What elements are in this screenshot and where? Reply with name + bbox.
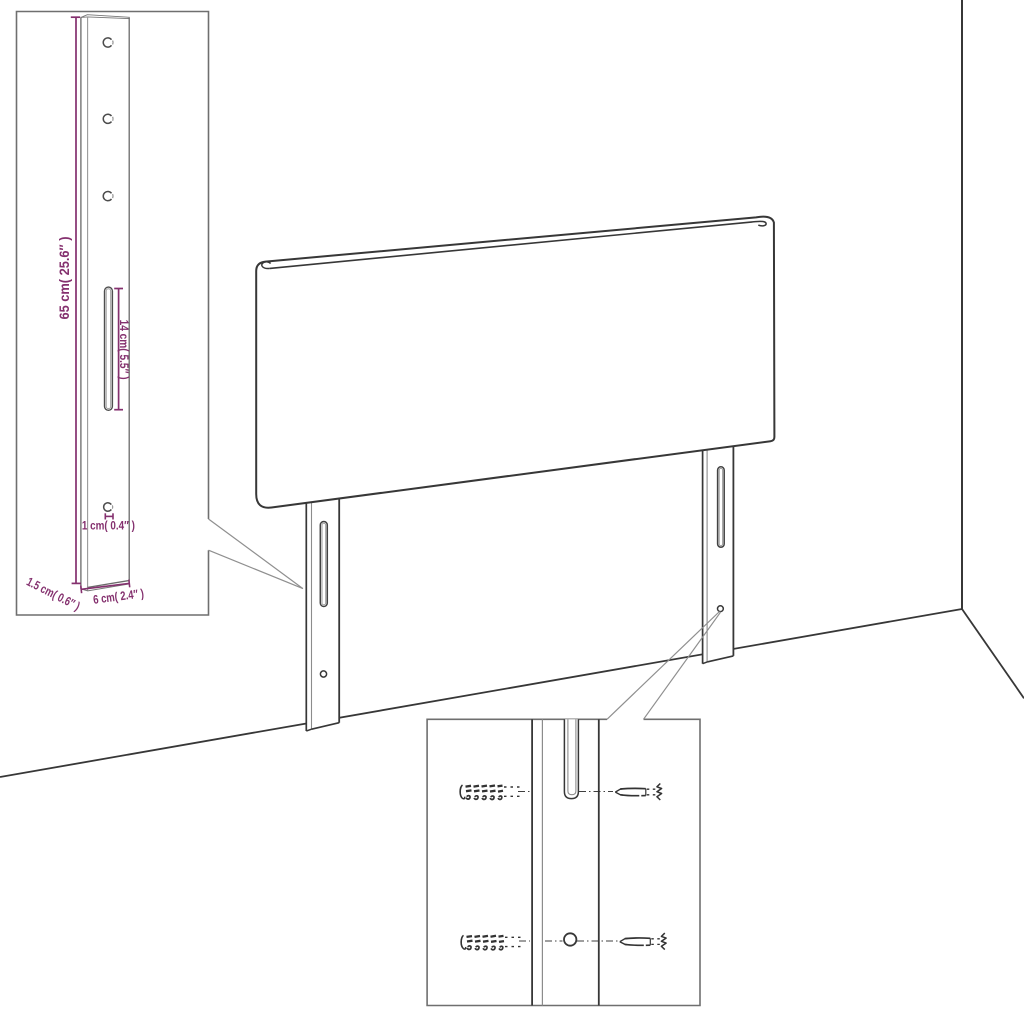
svg-text:1 cm( 0.4″ ): 1 cm( 0.4″ ) [82, 519, 135, 533]
svg-text:65 cm( 25.6″ ): 65 cm( 25.6″ ) [57, 237, 72, 320]
svg-text:14 cm( 5.5″ ): 14 cm( 5.5″ ) [117, 320, 131, 380]
